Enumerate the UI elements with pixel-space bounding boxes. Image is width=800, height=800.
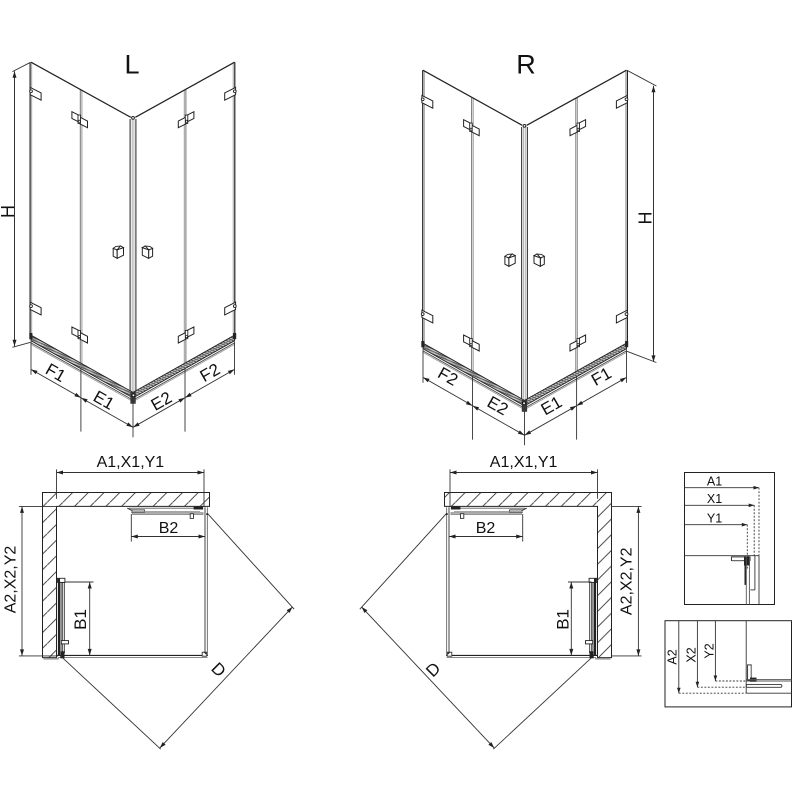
svg-text:X2: X2 [684,647,698,662]
svg-text:B2: B2 [476,520,496,537]
svg-text:H: H [636,212,656,225]
svg-text:A2: A2 [666,649,680,664]
svg-text:A2,X2,Y2: A2,X2,Y2 [2,546,19,614]
svg-text:A1: A1 [707,475,722,489]
svg-text:B2: B2 [159,520,179,537]
svg-text:L: L [124,49,139,79]
svg-text:B1: B1 [553,609,572,630]
svg-text:X1: X1 [707,492,722,506]
svg-text:Y1: Y1 [707,512,722,526]
svg-text:H: H [0,205,18,218]
svg-text:B1: B1 [71,609,90,630]
svg-text:A2,X2,Y2: A2,X2,Y2 [619,547,636,615]
svg-text:A1,X1,Y1: A1,X1,Y1 [97,454,165,471]
svg-text:Y2: Y2 [702,643,716,658]
svg-text:R: R [516,49,536,79]
svg-text:A1,X1,Y1: A1,X1,Y1 [490,454,558,471]
